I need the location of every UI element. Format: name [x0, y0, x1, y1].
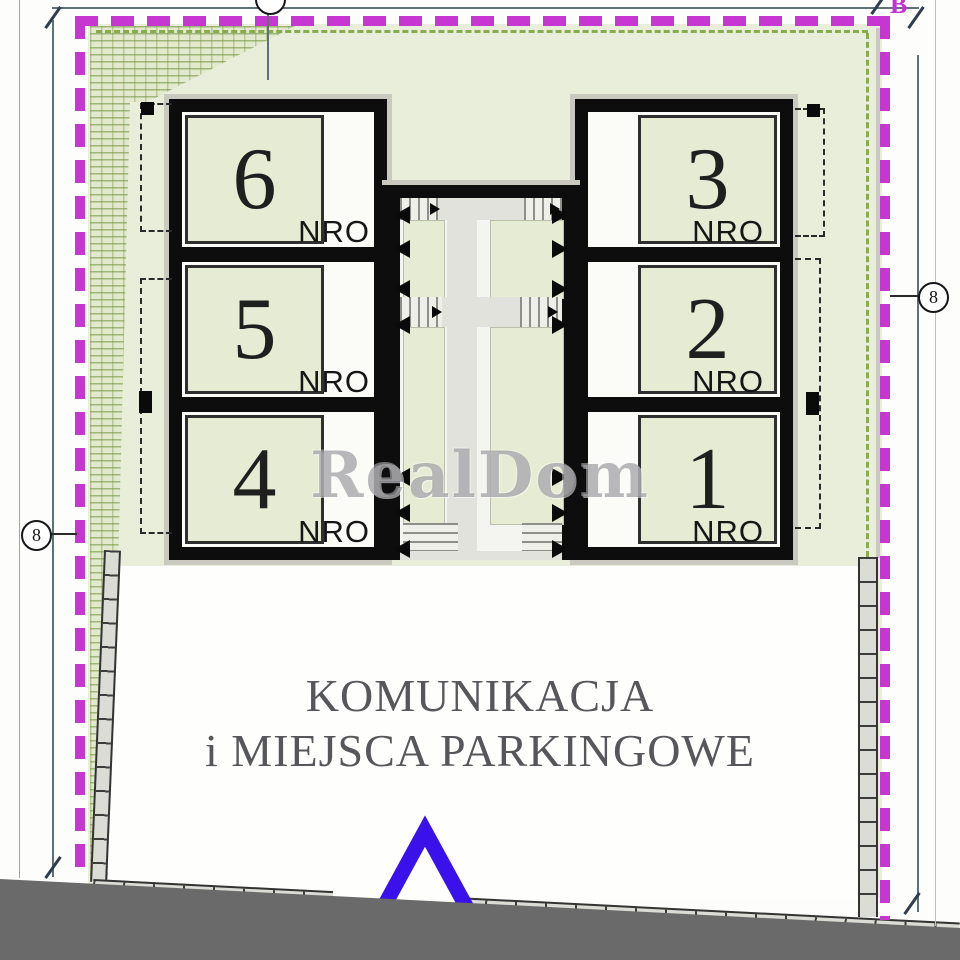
site-plan-page: KOMUNIKACJA i MIEJSCA PARKINGOWE 6 NRO 5…	[0, 0, 960, 960]
watermark: RealDom	[310, 438, 650, 513]
